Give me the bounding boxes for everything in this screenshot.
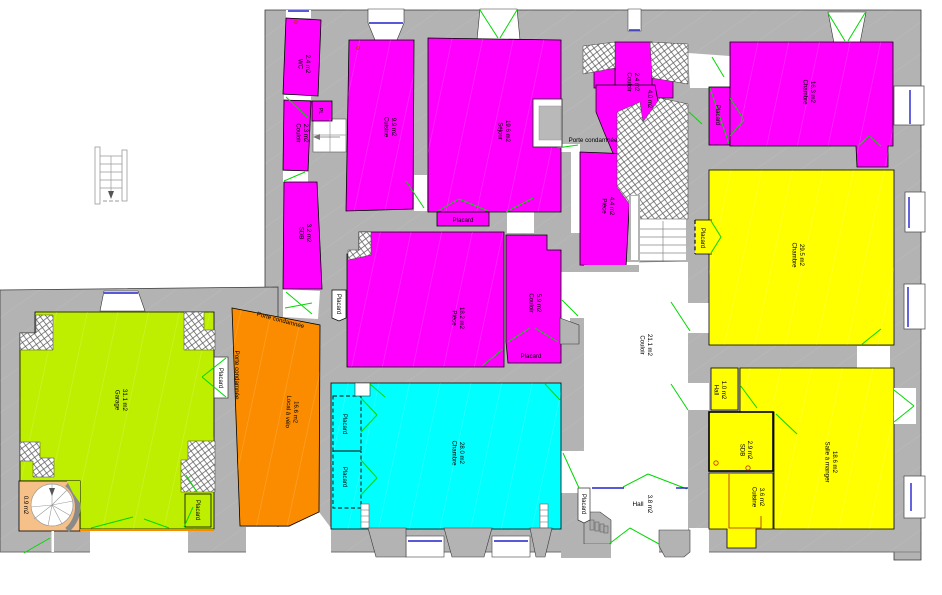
svg-text:16.3 m2Chambre: 16.3 m2Chambre <box>802 79 817 105</box>
svg-text:Placard: Placard <box>341 414 347 434</box>
svg-text:4.4 m2Pièce: 4.4 m2Pièce <box>601 197 616 216</box>
svg-text:Placard: Placard <box>580 494 586 514</box>
svg-text:Placard: Placard <box>714 105 720 125</box>
svg-text:5.9 m2Couloir: 5.9 m2Couloir <box>528 293 543 313</box>
svg-text:28.0 m2Chambre: 28.0 m2Chambre <box>451 440 466 466</box>
svg-text:Placard: Placard <box>217 368 223 388</box>
svg-text:4.0 m2: 4.0 m2 <box>646 90 653 109</box>
svg-text:PL: PL <box>317 108 323 115</box>
svg-text:Placard: Placard <box>453 217 475 224</box>
svg-text:31.1 m2Garage: 31.1 m2Garage <box>114 389 129 412</box>
svg-text:19.6 m2Séjour: 19.6 m2Séjour <box>497 120 512 143</box>
svg-text:3.6 m2Cuisine: 3.6 m2Cuisine <box>751 487 766 508</box>
svg-text:Placard: Placard <box>335 294 341 314</box>
svg-text:9.9 m2Cuisine: 9.9 m2Cuisine <box>383 117 398 138</box>
svg-text:2.4 m2Couloir: 2.4 m2Couloir <box>626 72 641 92</box>
svg-text:Placard: Placard <box>194 500 200 520</box>
svg-text:Hall: Hall <box>632 501 643 508</box>
svg-text:Porte condamnée: Porte condamnée <box>569 137 618 144</box>
svg-text:29.5 m2Chambre: 29.5 m2Chambre <box>791 242 806 268</box>
svg-text:2.3 m2Couloir: 2.3 m2Couloir <box>295 123 310 143</box>
svg-text:0.9 m2: 0.9 m2 <box>22 496 28 515</box>
svg-text:21.1 m2Couloir: 21.1 m2Couloir <box>639 334 654 357</box>
svg-text:3.8 m2: 3.8 m2 <box>646 495 653 514</box>
svg-text:Placard: Placard <box>341 467 347 487</box>
svg-text:Placard: Placard <box>521 353 543 360</box>
svg-text:Porte condamnée: Porte condamnée <box>233 351 240 400</box>
svg-text:Placard: Placard <box>699 228 705 248</box>
